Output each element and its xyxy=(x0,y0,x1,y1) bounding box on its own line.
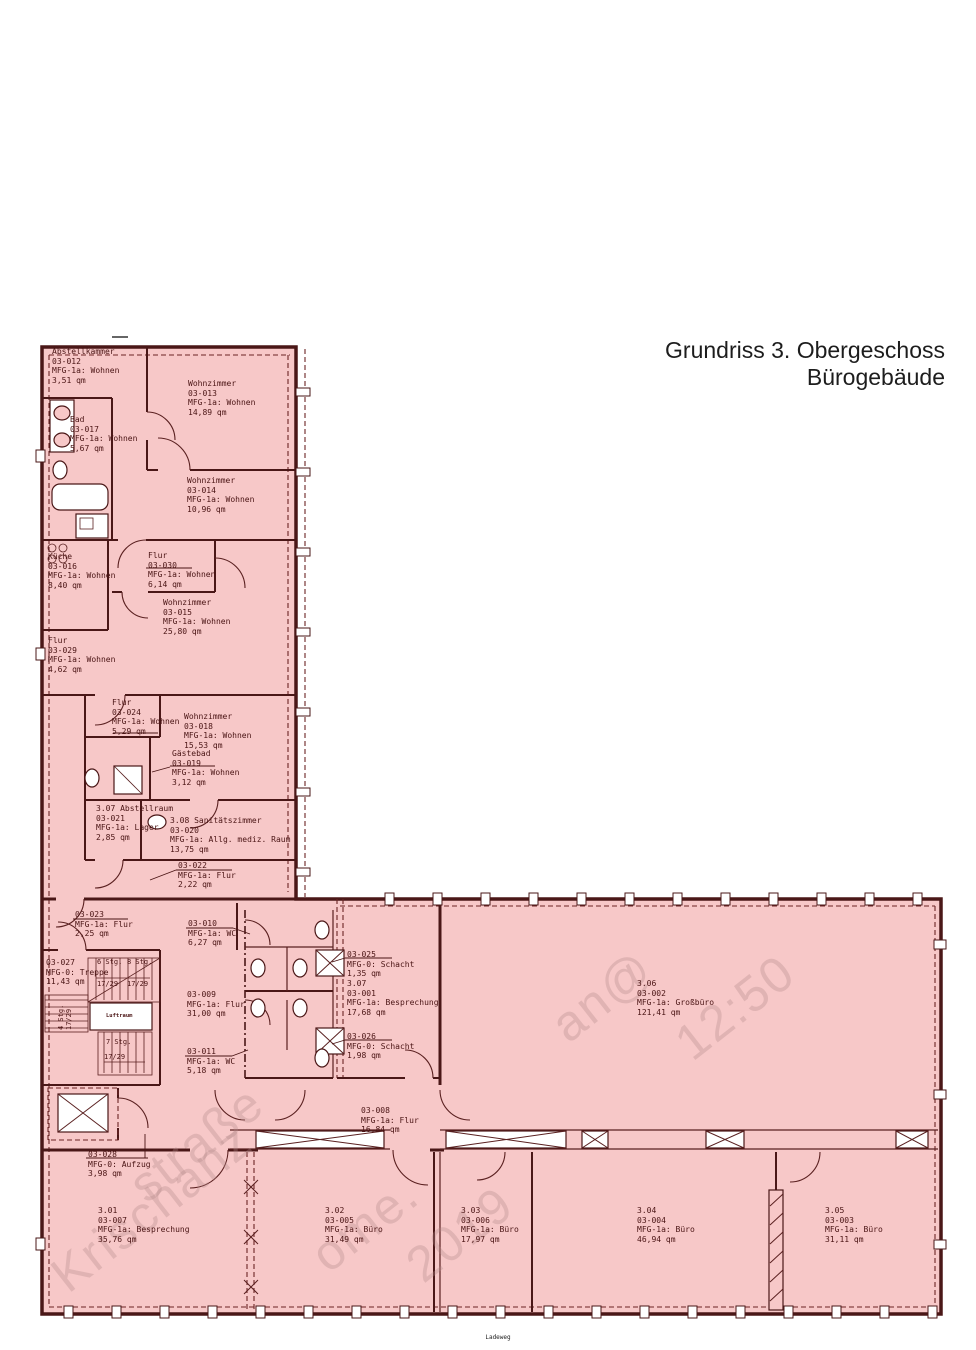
room-label-03-003: 3.05 03-003 MFG-1a: Büro 31,11 qm xyxy=(825,1206,883,1244)
room-label-03-008: 03-008 MFG-1a: Flur 16,84 qm xyxy=(361,1106,419,1135)
room-label-03-015: Wohnzimmer 03-015 MFG-1a: Wohnen 25,80 q… xyxy=(163,598,230,636)
floorplan-page: Grundriss 3. Obergeschoss Bürogebäude Kr… xyxy=(0,0,976,1350)
room-label-03-010: 03-010 MFG-1a: WC 6,27 qm xyxy=(188,919,236,948)
room-label-03-007: 3.01 03-007 MFG-1a: Besprechung 35,76 qm xyxy=(98,1206,190,1244)
drawing-title: Grundriss 3. Obergeschoss Bürogebäude xyxy=(665,337,945,391)
toilet xyxy=(53,461,67,479)
room-label-03-028: 03-028 MFG-0: Aufzug 3,98 qm xyxy=(88,1150,151,1179)
toilet xyxy=(293,959,307,977)
room-label-03-002: 3.06 03-002 MFG-1a: Großbüro 121,41 qm xyxy=(637,979,714,1017)
room-label-03-021: 3.07 Abstellraum 03-021 MFG-1a: Lager 2,… xyxy=(96,804,173,842)
room-label-03-005: 3.02 03-005 MFG-1a: Büro 31,49 qm xyxy=(325,1206,383,1244)
stair-annotation: Luftraum xyxy=(106,1013,133,1019)
room-label-03-011: 03-011 MFG-1a: WC 5,18 qm xyxy=(187,1047,235,1076)
room-label-03-001: 3.07 03-001 MFG-1a: Besprechung 17,68 qm xyxy=(347,979,439,1017)
room-label-03-020: 3.08 Sanitätszimmer 03-020 MFG-1a: Allg.… xyxy=(170,816,290,854)
toilet xyxy=(315,1049,329,1067)
room-label-03-018: Wohnzimmer 03-018 MFG-1a: Wohnen 15,53 q… xyxy=(184,712,251,750)
stair-annotation: 17/29 xyxy=(127,980,148,988)
room-label-03-004: 3.04 03-004 MFG-1a: Büro 46,94 qm xyxy=(637,1206,695,1244)
title-line2: Bürogebäude xyxy=(665,364,945,391)
bathtub xyxy=(52,484,108,510)
stair-annotation: 7 Stg. xyxy=(106,1038,131,1046)
room-label-03-023: 03-023 MFG-1a: Flur 2,25 qm xyxy=(75,910,133,939)
sink xyxy=(54,433,70,447)
floorplan-drawing xyxy=(0,0,976,1350)
title-line1: Grundriss 3. Obergeschoss xyxy=(665,337,945,364)
hatched-partition xyxy=(769,1190,783,1310)
stair-annotation: 8 Stg. xyxy=(127,958,152,966)
stair-annotation: 6 Stg. xyxy=(97,958,122,966)
footer-text: Ladeweg xyxy=(468,1334,528,1341)
toilet xyxy=(85,769,99,787)
sink xyxy=(251,999,265,1017)
room-label-03-025: 03-025 MFG-0: Schacht 1,35 qm xyxy=(347,950,414,979)
room-label-03-017: Bad 03-017 MFG-1a: Wohnen 5,67 qm xyxy=(70,415,137,453)
room-label-03-006: 3.03 03-006 MFG-1a: Büro 17,97 qm xyxy=(461,1206,519,1244)
stair-annotation: 4 Stg. 17/29 xyxy=(57,1005,73,1030)
sink xyxy=(315,921,329,939)
toilet xyxy=(251,959,265,977)
stair-annotation: 17/29 xyxy=(104,1053,125,1061)
room-label-03-019: Gästebad 03-019 MFG-1a: Wohnen 3,12 qm xyxy=(172,749,239,787)
room-label-03-013: Wohnzimmer 03-013 MFG-1a: Wohnen 14,89 q… xyxy=(188,379,255,417)
room-label-03-030: Flur 03-030 MFG-1a: Wohnen 6,14 qm xyxy=(148,551,215,589)
kitchen-sink xyxy=(76,514,108,538)
room-label-03-016: Küche 03-016 MFG-1a: Wohnen 8,40 qm xyxy=(48,552,115,590)
sink xyxy=(54,406,70,420)
room-label-03-024: Flur 03-024 MFG-1a: Wohnen 5,29 qm xyxy=(112,698,179,736)
room-label-03-026: 03-026 MFG-0: Schacht 1,98 qm xyxy=(347,1032,414,1061)
room-label-03-009: 03-009 MFG-1a: Flur 31,00 qm xyxy=(187,990,245,1019)
room-label-03-014: Wohnzimmer 03-014 MFG-1a: Wohnen 10,96 q… xyxy=(187,476,254,514)
room-label-03-029: Flur 03-029 MFG-1a: Wohnen 4,62 qm xyxy=(48,636,115,674)
stair-annotation: 17/29 xyxy=(97,980,118,988)
room-label-03-012: Abstellkammer 03-012 MFG-1a: Wohnen 3,51… xyxy=(52,347,119,385)
room-label-03-022: 03-022 MFG-1a: Flur 2,22 qm xyxy=(178,861,236,890)
sink xyxy=(293,999,307,1017)
